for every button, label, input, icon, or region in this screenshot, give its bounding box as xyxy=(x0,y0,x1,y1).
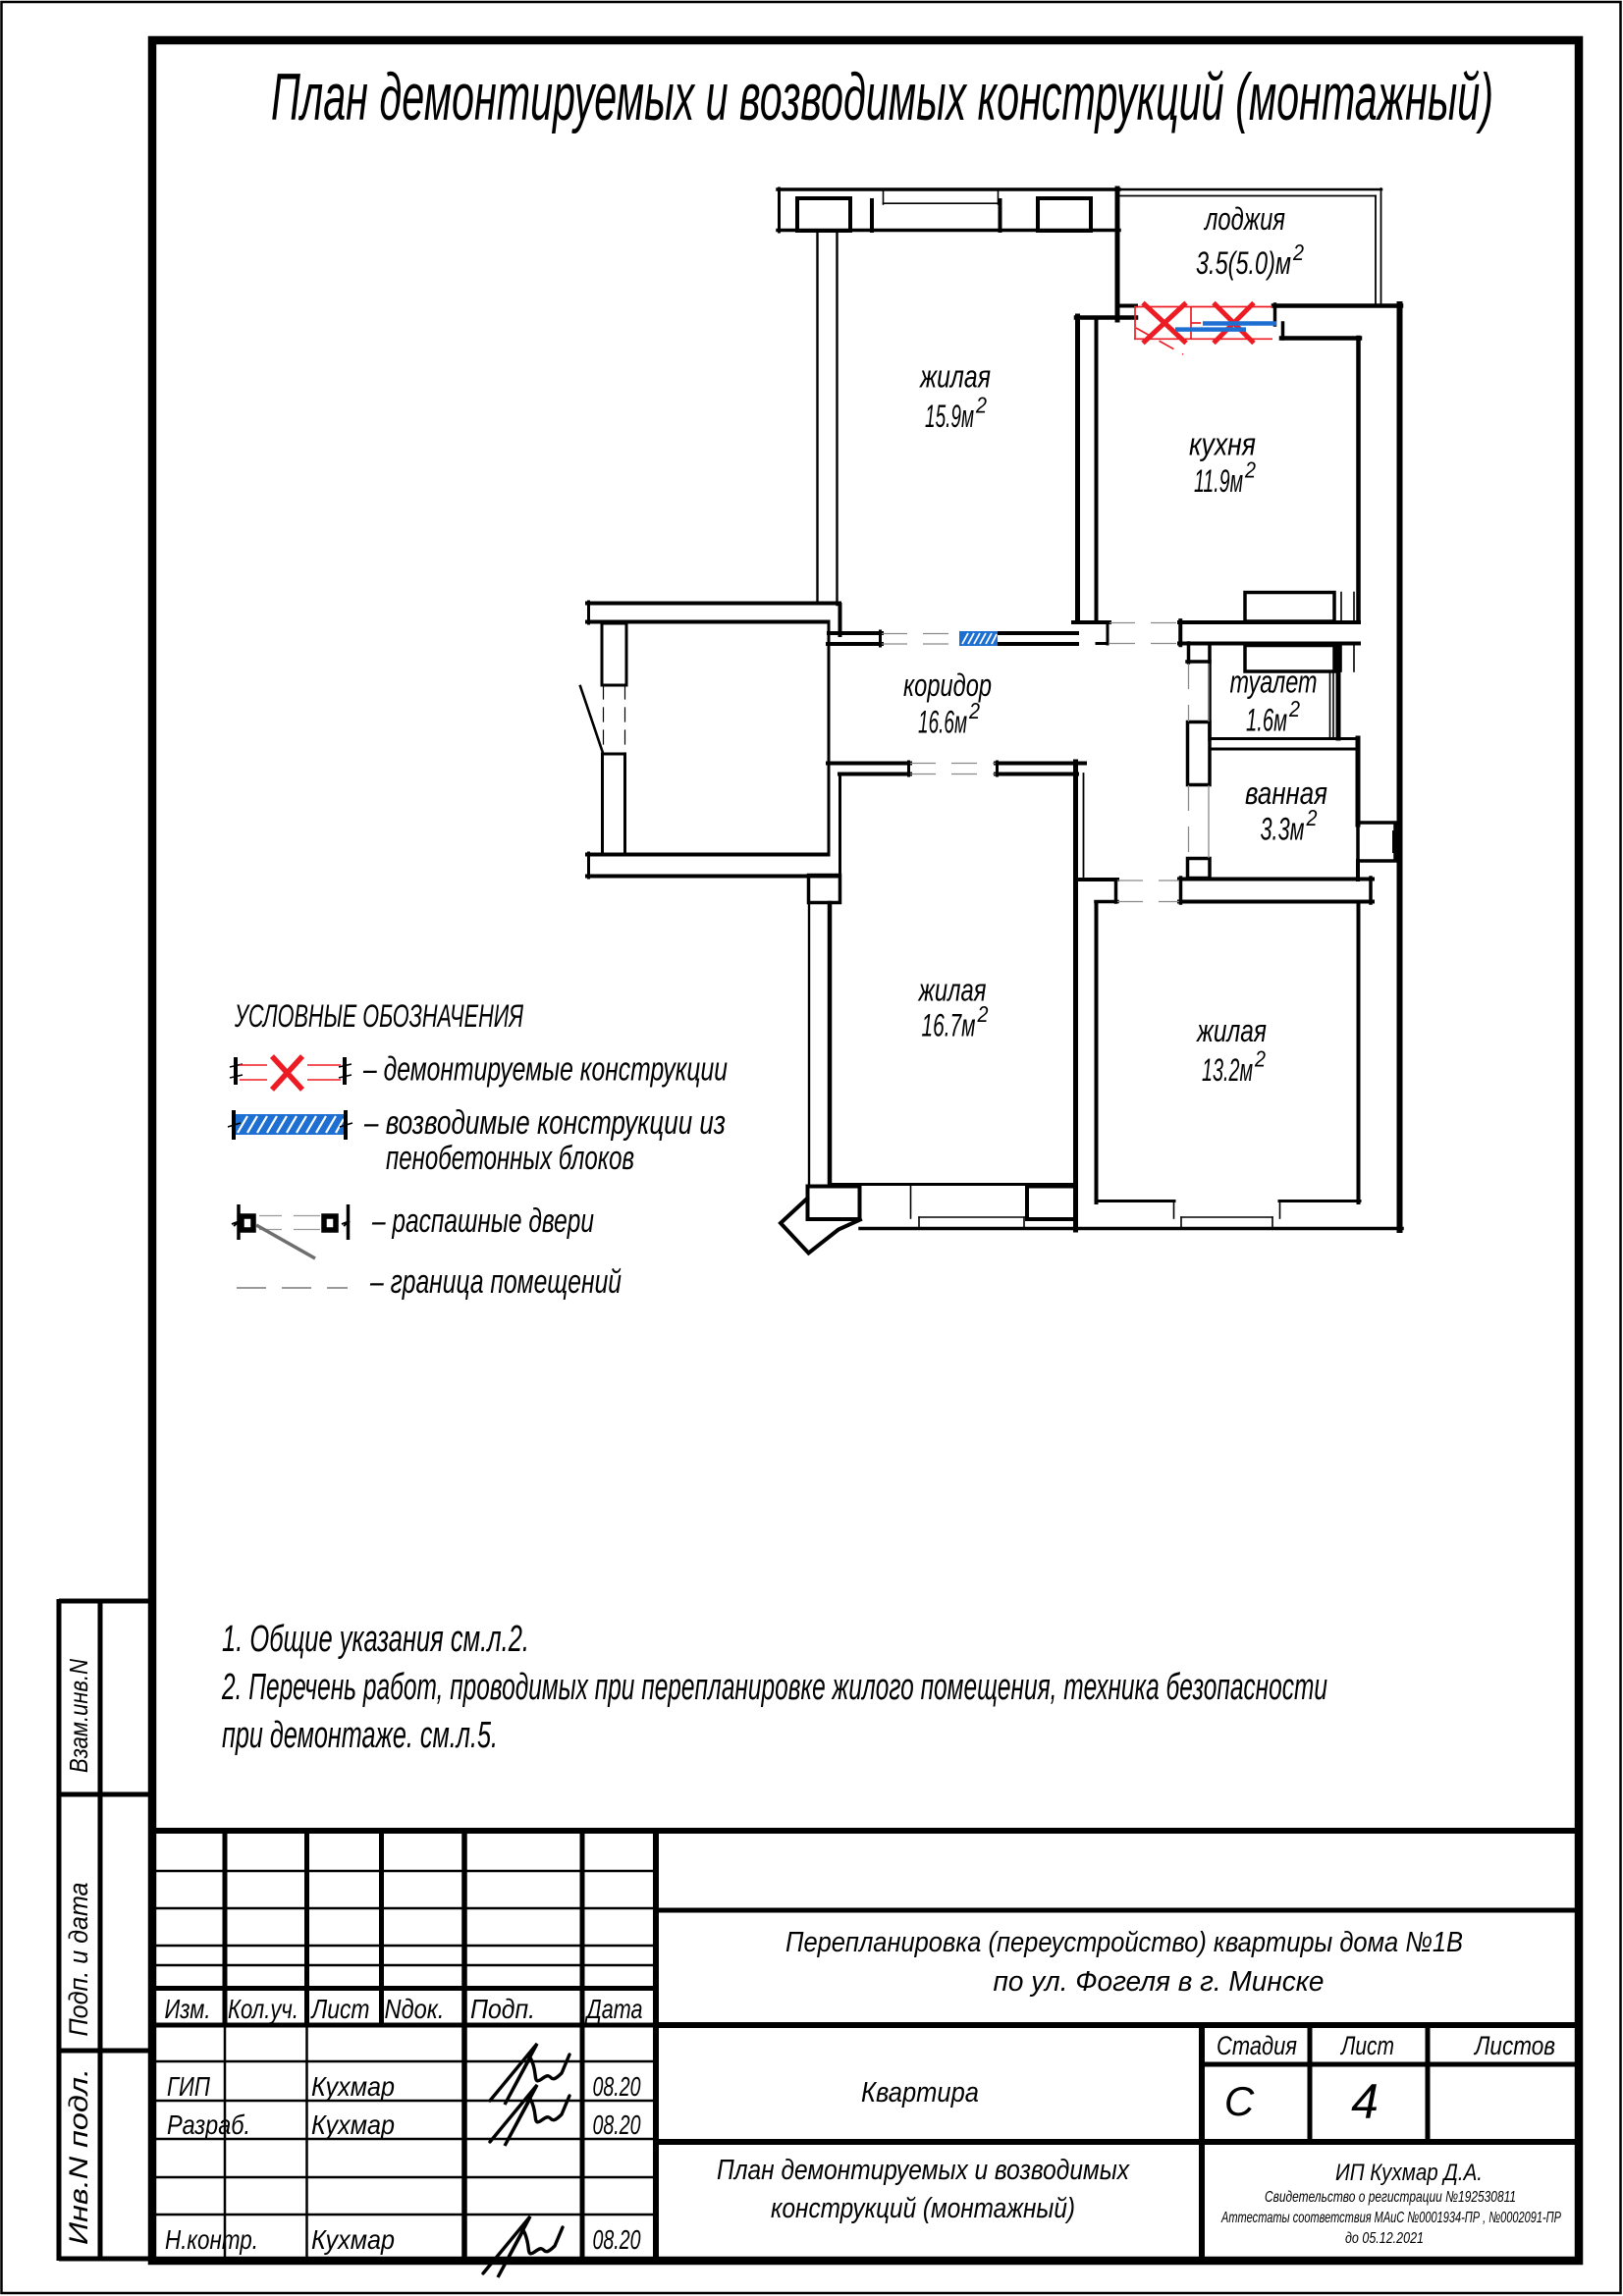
svg-text:пенобетонных блоков: пенобетонных блоков xyxy=(386,1140,634,1177)
svg-text:2: 2 xyxy=(975,393,987,418)
svg-text:План демонтируемых и возвод: План демонтируемых и возводимых конструк… xyxy=(271,60,1493,134)
svg-text:08.20: 08.20 xyxy=(593,2109,641,2140)
svg-text:11.9м: 11.9м xyxy=(1194,463,1243,499)
svg-text:лоджия: лоджия xyxy=(1204,201,1285,237)
svg-text:Свидетельство о регистрации №1: Свидетельство о регистрации №192530811 xyxy=(1265,2189,1516,2206)
svg-text:Аттестаты соответствия МАиС №: Аттестаты соответствия МАиС №0001934-ПР … xyxy=(1220,2210,1561,2226)
svg-text:2: 2 xyxy=(1254,1046,1266,1072)
svg-text:ИП Кухмар Д.А.: ИП Кухмар Д.А. xyxy=(1335,2160,1483,2186)
svg-text:2: 2 xyxy=(977,1001,989,1027)
svg-text:Лист: Лист xyxy=(1339,2031,1394,2060)
svg-text:2: 2 xyxy=(1244,457,1256,483)
svg-text:Кол.уч.: Кол.уч. xyxy=(228,1994,298,2024)
svg-text:3.3м: 3.3м xyxy=(1261,812,1305,847)
svg-text:Дата: Дата xyxy=(584,1994,642,2024)
svg-text:2: 2 xyxy=(1306,805,1318,830)
svg-text:08.20: 08.20 xyxy=(593,2224,641,2255)
svg-text:при демонтаже. см.л.5.: при демонтаже. см.л.5. xyxy=(222,1715,498,1756)
svg-text:08.20: 08.20 xyxy=(593,2071,641,2102)
svg-text:жилая: жилая xyxy=(918,359,991,395)
svg-text:16.6м: 16.6м xyxy=(918,705,967,740)
svg-text:– граница помещений: – граница помещений xyxy=(369,1263,622,1301)
svg-text:План демонтируемых и возводимы: План демонтируемых и возводимых xyxy=(717,2155,1130,2186)
svg-text:Изм.: Изм. xyxy=(165,1994,211,2024)
svg-text:УСЛОВНЫЕ ОБОЗНАЧЕНИЯ: УСЛОВНЫЕ ОБОЗНАЧЕНИЯ xyxy=(234,998,523,1034)
svg-text:– демонтируемые конструкции: – демонтируемые конструкции xyxy=(362,1051,728,1089)
svg-text:Лист: Лист xyxy=(310,1994,370,2024)
svg-text:Перепланировка (переустройств: Перепланировка (переустройство) квартиры… xyxy=(785,1927,1463,1958)
svg-text:С: С xyxy=(1224,2078,1255,2124)
svg-text:Квартира: Квартира xyxy=(861,2077,979,2109)
svg-text:2: 2 xyxy=(1292,240,1304,265)
svg-text:1. Общие указания см.л.2.: 1. Общие указания см.л.2. xyxy=(222,1619,529,1660)
svg-text:Кухмар: Кухмар xyxy=(311,2224,395,2255)
svg-text:Взам.инв.N: Взам.инв.N xyxy=(64,1659,93,1773)
svg-text:жилая: жилая xyxy=(917,973,986,1008)
svg-text:4: 4 xyxy=(1351,2074,1379,2129)
svg-text:по ул. Фогеля в г. Минске: по ул. Фогеля в г. Минске xyxy=(994,1966,1325,1998)
svg-text:2: 2 xyxy=(1288,696,1300,721)
svg-text:Подп.: Подп. xyxy=(470,1994,535,2024)
svg-text:Nдок.: Nдок. xyxy=(385,1994,445,2024)
svg-text:Н.контр.: Н.контр. xyxy=(165,2224,258,2255)
svg-text:жилая: жилая xyxy=(1195,1013,1267,1048)
svg-text:3.5(5.0)м: 3.5(5.0)м xyxy=(1196,245,1291,281)
svg-text:13.2м: 13.2м xyxy=(1202,1052,1253,1088)
svg-text:1.6м: 1.6м xyxy=(1246,703,1287,738)
svg-text:Инв.N подл.: Инв.N подл. xyxy=(64,2068,93,2245)
svg-text:до 05.12.2021: до 05.12.2021 xyxy=(1345,2230,1424,2247)
svg-text:Подп. и дата: Подп. и дата xyxy=(64,1883,93,2037)
svg-text:15.9м: 15.9м xyxy=(925,399,974,434)
svg-text:конструкций (монтажный): конструкций (монтажный) xyxy=(771,2193,1075,2224)
svg-text:– распашные двери: – распашные двери xyxy=(371,1202,594,1240)
svg-text:туалет: туалет xyxy=(1230,665,1318,700)
svg-text:Листов: Листов xyxy=(1473,2031,1555,2060)
svg-text:Кухмар: Кухмар xyxy=(311,2109,395,2140)
svg-text:– возводимые конструкции из: – возводимые конструкции из xyxy=(363,1104,726,1142)
svg-text:2: 2 xyxy=(968,698,980,723)
svg-text:Разраб.: Разраб. xyxy=(167,2109,250,2140)
svg-text:ГИП: ГИП xyxy=(167,2071,211,2102)
svg-text:2. Перечень работ, проводимых: 2. Перечень работ, проводимых при перепл… xyxy=(221,1667,1327,1708)
svg-text:Стадия: Стадия xyxy=(1217,2031,1297,2060)
svg-text:Кухмар: Кухмар xyxy=(311,2071,395,2102)
svg-text:16.7м: 16.7м xyxy=(922,1008,976,1043)
